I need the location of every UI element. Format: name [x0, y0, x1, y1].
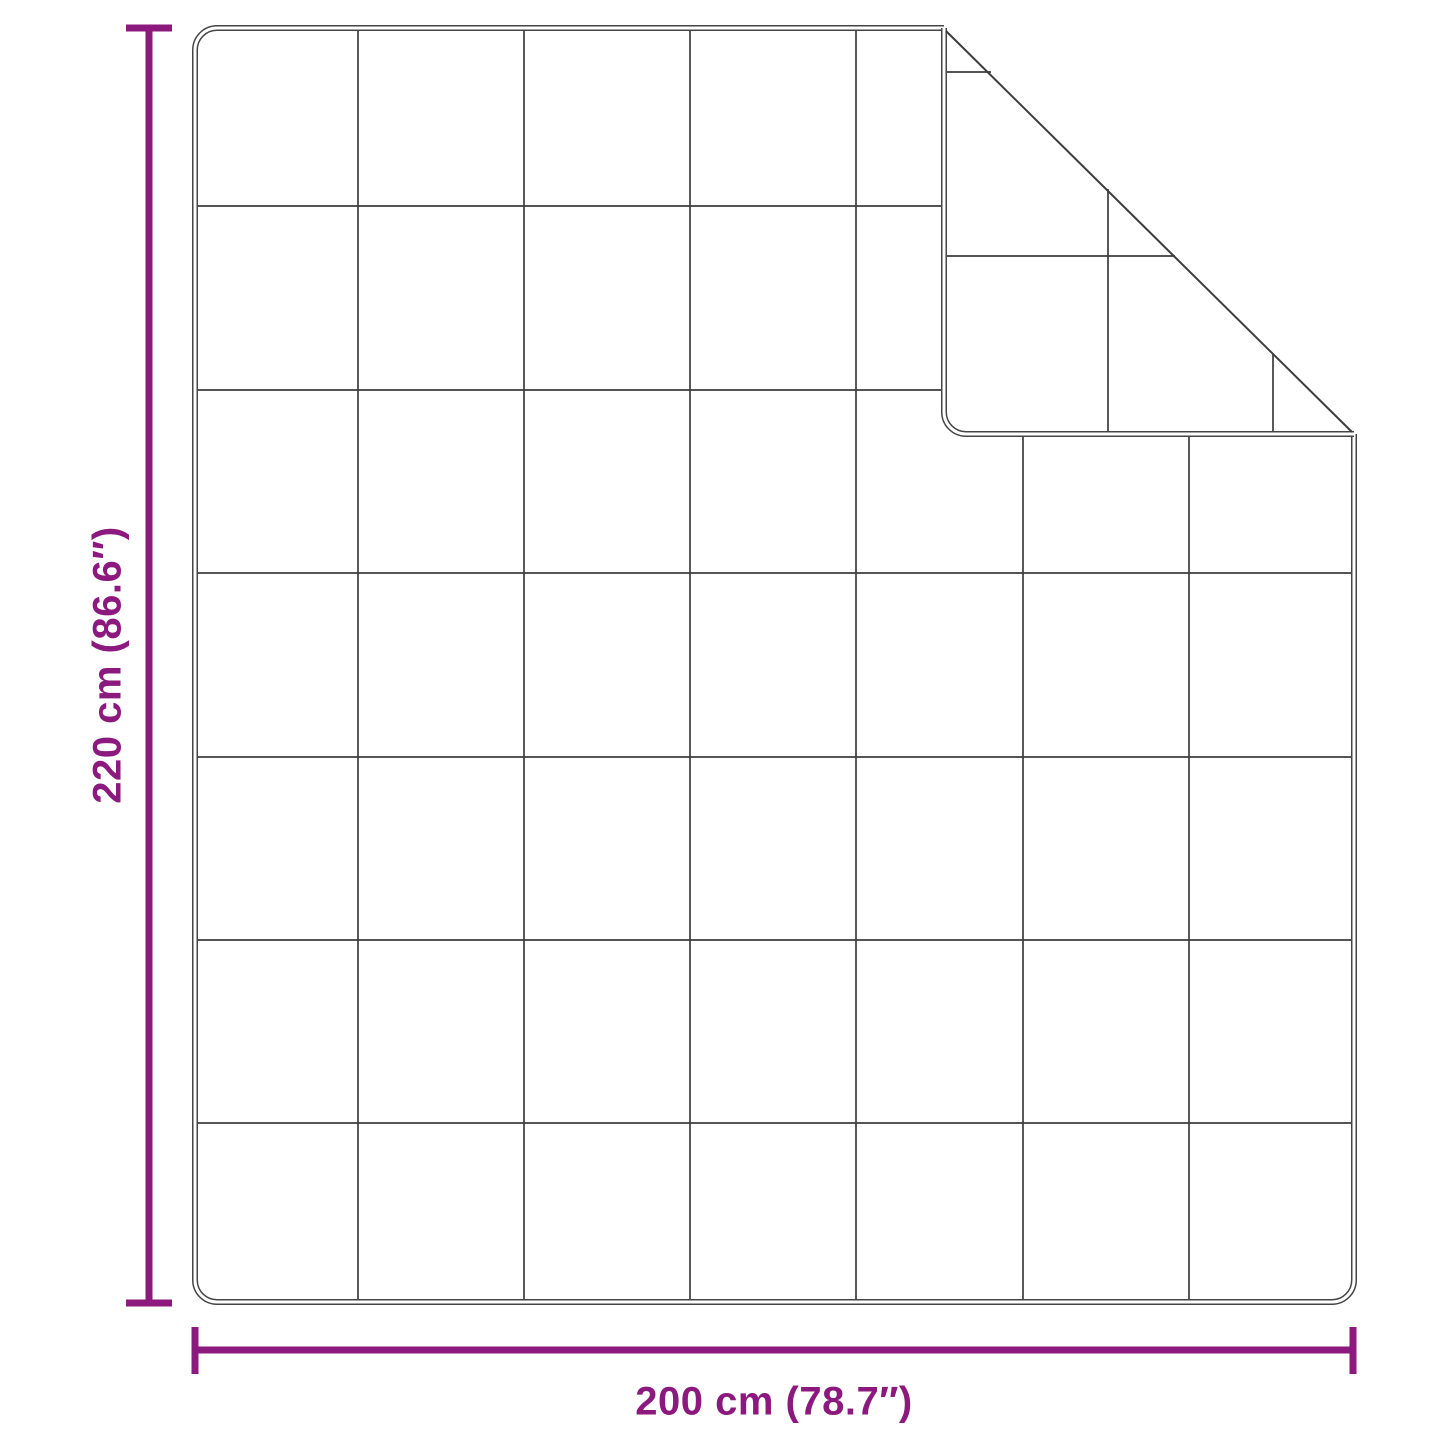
blanket-diagram [0, 0, 1445, 1445]
width-dimension-line [195, 1327, 1353, 1374]
height-dimension-label: 220 cm (86.6″) [86, 526, 131, 803]
height-dimension-line [126, 28, 172, 1303]
blanket-silhouette [195, 28, 1354, 1302]
product-dimension-diagram: 220 cm (86.6″) 200 cm (78.7″) [0, 0, 1445, 1445]
folded-corner-flap [944, 28, 1354, 434]
width-dimension-label: 200 cm (78.7″) [635, 1380, 912, 1425]
blanket-body [195, 28, 1354, 1302]
